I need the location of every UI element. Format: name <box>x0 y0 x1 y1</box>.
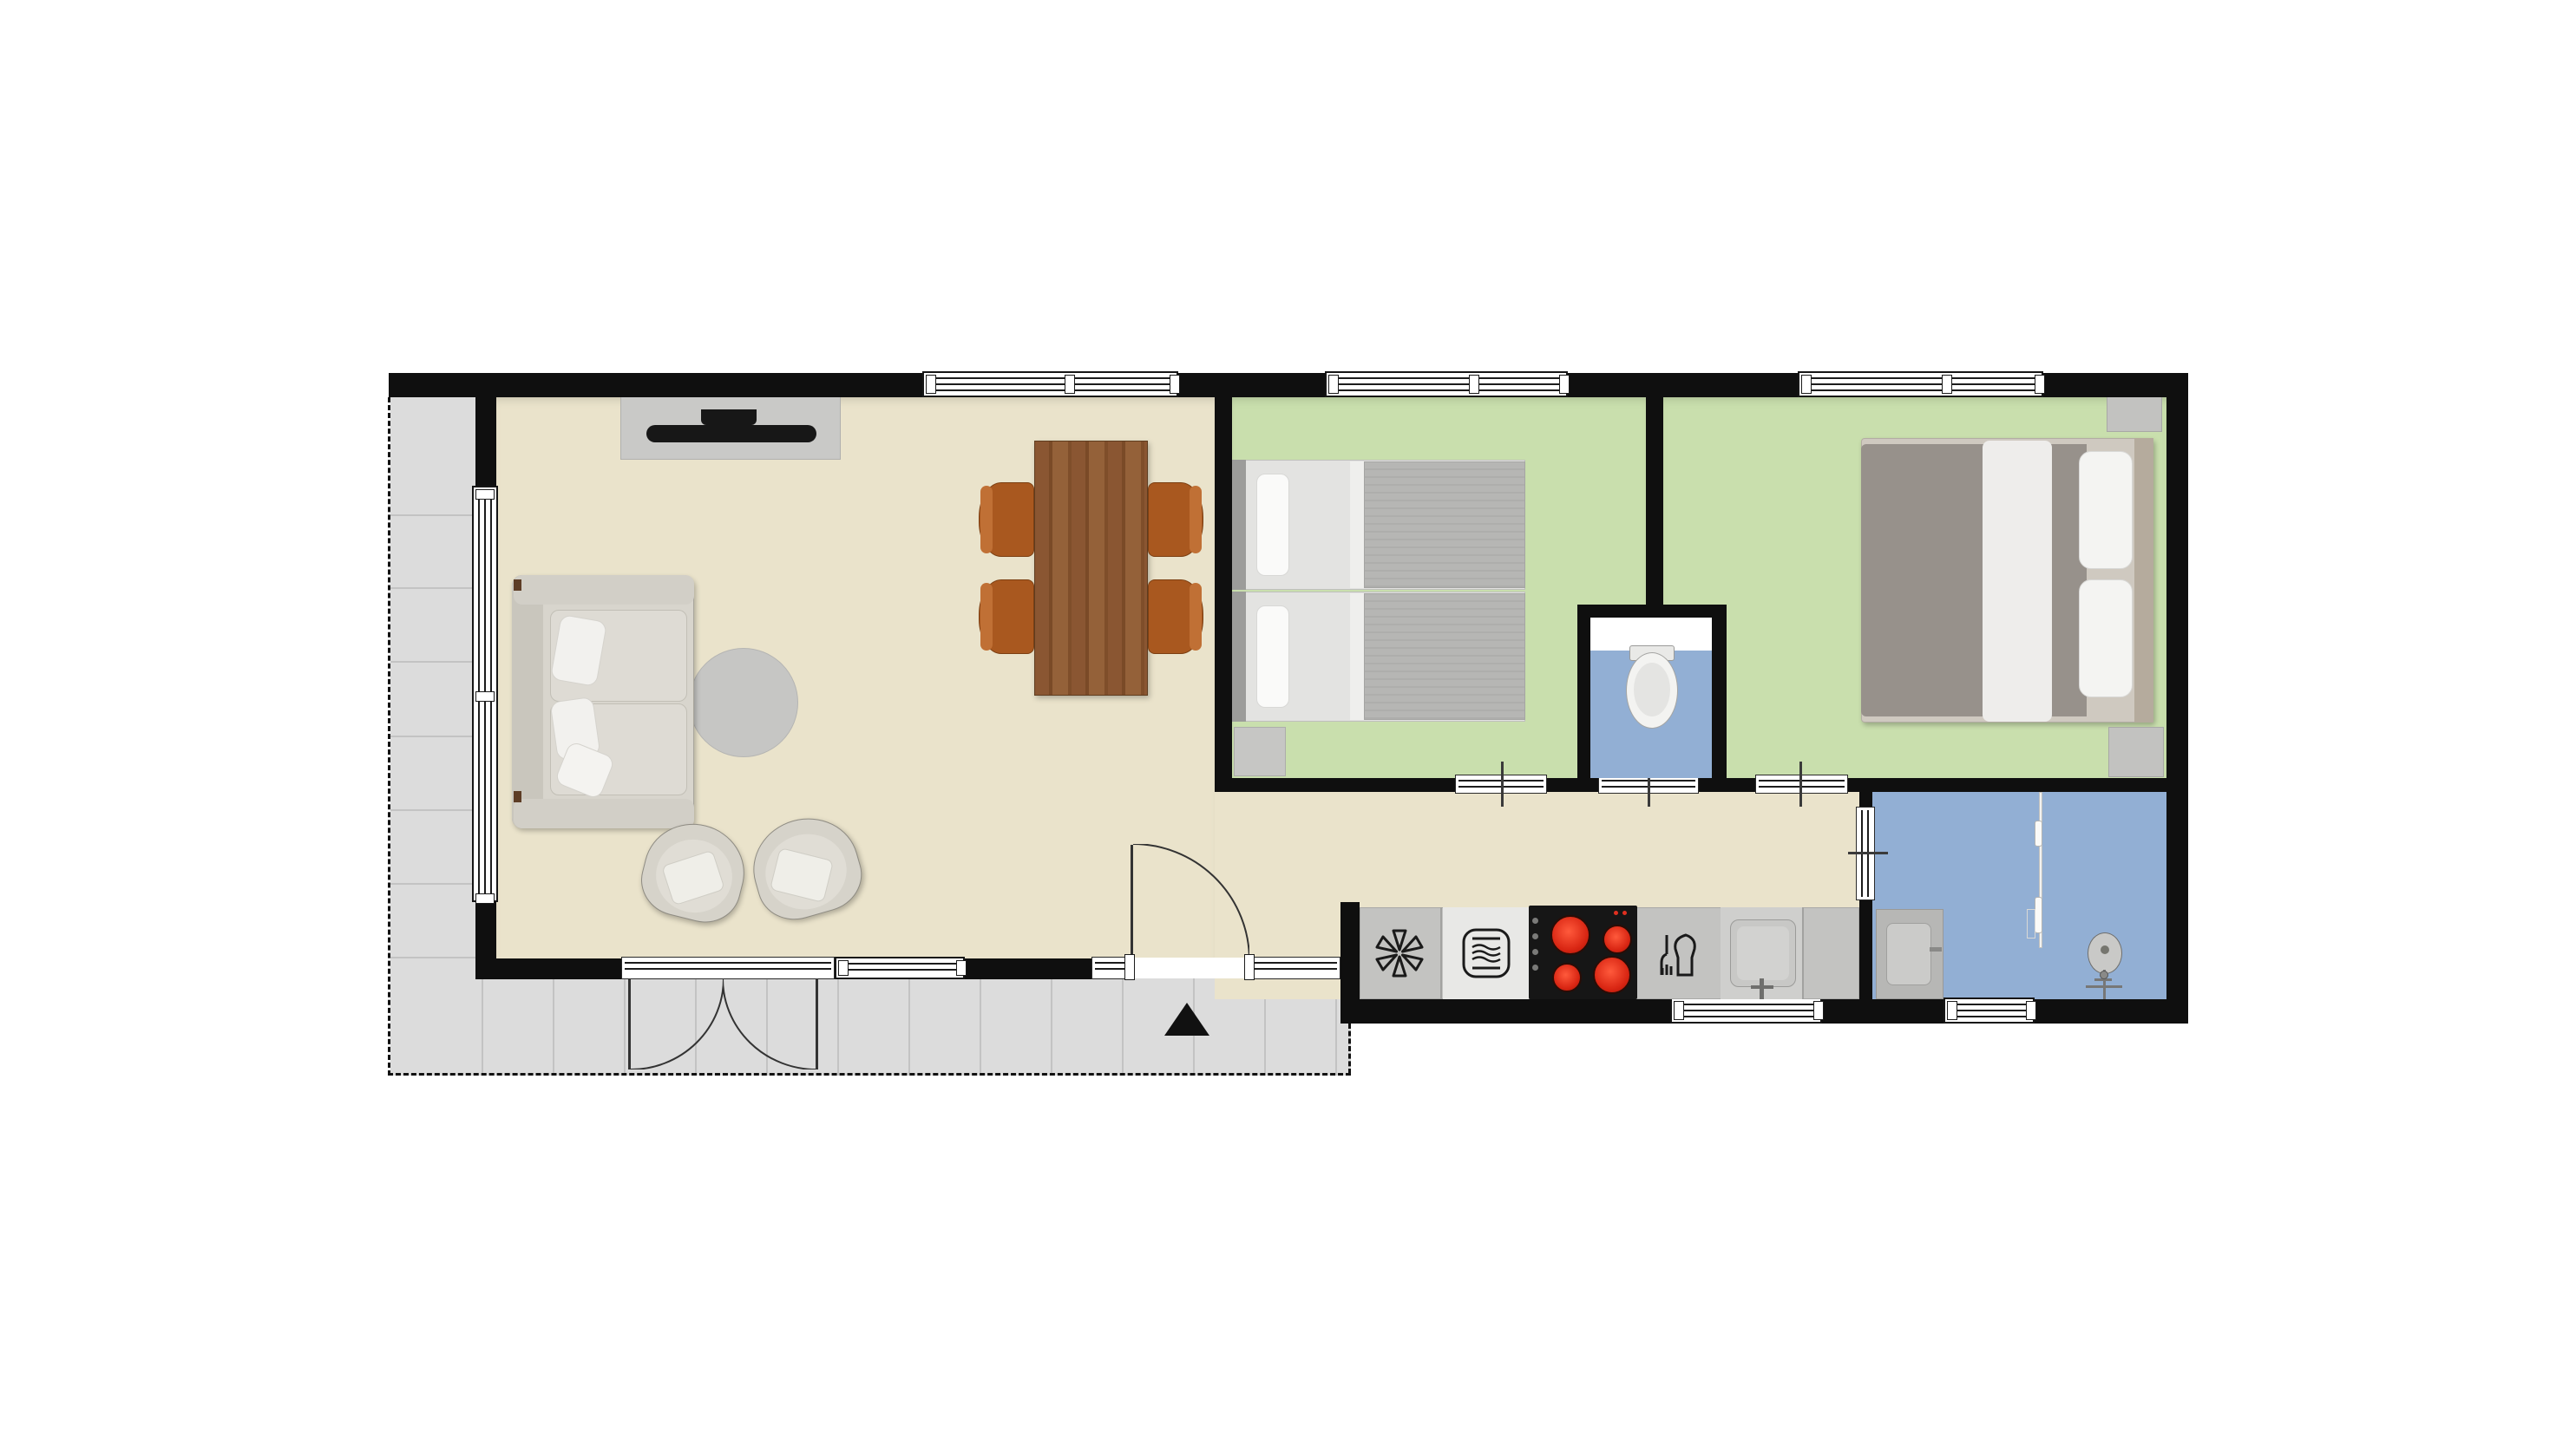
cooktop-knob <box>1532 949 1538 955</box>
nightstand <box>2108 727 2164 777</box>
entrance-arrow <box>1164 1003 1209 1036</box>
window-mullion <box>1469 375 1479 394</box>
wall-hall <box>1215 778 1455 792</box>
terrace-boundary-right <box>1348 1024 1351 1074</box>
wall-wc-right <box>1712 618 1727 792</box>
window-mullion <box>1942 375 1952 394</box>
window-living-top <box>922 371 1178 397</box>
wall-hall <box>1848 778 1872 792</box>
french-door-swing <box>723 978 816 1069</box>
round-rug <box>689 648 798 757</box>
glazing-lines <box>927 377 1174 391</box>
cooktop-knob <box>1532 933 1538 939</box>
wall-living-bottom <box>475 958 621 979</box>
double-bed-pillow <box>2079 451 2133 569</box>
window-bedroom-2 <box>1798 371 2043 397</box>
wall-top <box>1568 373 1798 397</box>
twin-bed-duvet <box>1364 593 1525 720</box>
cooktop-burner <box>1550 915 1590 955</box>
nightstand <box>2107 396 2162 432</box>
window-living-bottom <box>835 957 965 979</box>
terrace-boundary-bottom <box>388 1073 1351 1076</box>
cooktop-burner <box>1552 963 1582 992</box>
window-mullion <box>1170 375 1180 394</box>
terrace-tile-joint <box>482 978 483 1076</box>
wall-bedroom2-bathroom <box>1872 778 2188 792</box>
wall-hall-bathroom <box>1859 792 1872 807</box>
french-door-swing <box>631 978 724 1069</box>
dining-chair-back <box>980 486 993 553</box>
cooktop-indicator <box>1622 911 1627 915</box>
double-bed-sheet <box>1983 441 2052 722</box>
wall-left <box>475 373 496 486</box>
extractor-fan-icon <box>1374 928 1425 978</box>
window-mullion <box>475 691 495 702</box>
shower-valve <box>2100 971 2108 979</box>
door-position-tick <box>1501 762 1504 807</box>
wall-bottom-right <box>1340 999 1670 1024</box>
wall-hall <box>1547 778 1598 792</box>
floor-plan <box>0 0 2576 1439</box>
double-bed-duvet <box>1861 444 2087 716</box>
cooktop-burner <box>1603 925 1632 954</box>
twin-bed-pillow <box>1256 605 1289 708</box>
tv-screen <box>646 425 816 442</box>
window-mullion <box>1328 375 1339 394</box>
terrace-tile-joint <box>390 661 475 663</box>
wall-bedroom-divider <box>1646 396 1663 618</box>
shower-screen-knob <box>2035 897 2042 933</box>
twin-bed-sheet-fold <box>1350 461 1364 588</box>
sink-faucet-cross <box>1751 985 1773 989</box>
window-living-left <box>472 486 498 902</box>
vanity-tap <box>1930 947 1942 952</box>
twin-bed-sheet-fold <box>1350 593 1364 720</box>
entrance-door-post <box>1124 954 1135 980</box>
window-kitchen <box>1670 997 1822 1024</box>
shower-screen-knob <box>2035 821 2042 847</box>
terrace-tile-joint <box>980 978 981 1076</box>
wall-top <box>389 373 922 397</box>
door-position-tick <box>1799 762 1802 807</box>
sofa-armrest-bottom <box>514 799 694 828</box>
window-mullion <box>1674 1001 1684 1020</box>
dining-chair-back <box>1190 486 1202 553</box>
terrace-tile-joint <box>390 957 475 958</box>
dining-chair-back <box>980 583 993 651</box>
floor-plan-screenshot <box>0 0 2576 1439</box>
glazing-lines <box>625 962 831 974</box>
terrace-tile-joint <box>624 978 626 1076</box>
terrace-tile-joint <box>1122 978 1124 1076</box>
window-mullion <box>1065 375 1075 394</box>
entrance-door-opening <box>1130 958 1252 978</box>
cooktop-knob <box>1532 965 1538 971</box>
terrace-tile-joint <box>553 978 554 1076</box>
wall-wc-top <box>1577 605 1727 618</box>
cooktop-indicator <box>1614 911 1618 915</box>
window-mullion <box>1813 1001 1824 1020</box>
window-mullion <box>926 375 936 394</box>
wall-bedroom1-left <box>1215 396 1232 792</box>
sofa-wood-trim <box>514 579 521 591</box>
window-mullion <box>838 960 849 976</box>
terrace-tile-joint <box>908 978 910 1076</box>
dishwasher-icon <box>1654 928 1702 982</box>
shower-head-center <box>2101 945 2109 954</box>
toilet-seat <box>1634 663 1670 716</box>
terrace-tile-joint <box>390 514 475 516</box>
sofa-armrest-top <box>514 575 694 605</box>
terrace-tile-joint <box>837 978 839 1076</box>
window-mullion <box>475 893 495 904</box>
oven-icon <box>1459 926 1511 980</box>
window-bedroom-1 <box>1325 371 1568 397</box>
window-mullion <box>475 489 495 500</box>
sink-basin-inner <box>1737 926 1789 980</box>
cooktop-knob <box>1532 918 1538 924</box>
window-mullion <box>956 960 967 976</box>
wall-hall <box>1699 778 1755 792</box>
sofa-wood-trim <box>514 791 521 802</box>
window-mullion <box>2026 1001 2036 1020</box>
window-mullion <box>1559 375 1570 394</box>
shower-screen-handle <box>2027 909 2035 939</box>
terrace-tile-joint <box>1051 978 1052 1076</box>
wall-wc-left <box>1577 618 1590 792</box>
glazing-lines <box>1675 1004 1818 1017</box>
glazing-lines <box>1802 377 2039 391</box>
entrance-door-swing <box>1133 844 1249 960</box>
wall-living-bottom <box>965 958 1091 979</box>
dining-table <box>1034 441 1148 696</box>
double-bed-headboard <box>2134 438 2153 723</box>
glazing-lines <box>1329 377 1563 391</box>
wall-right <box>2166 373 2188 1024</box>
terrace-boundary-left <box>388 397 390 1076</box>
tv-mount <box>701 409 757 425</box>
double-bed-pillow <box>2079 579 2133 697</box>
window-mullion <box>2035 375 2045 394</box>
french-door-sill <box>621 957 835 979</box>
window-mullion <box>1801 375 1812 394</box>
twin-bed-pillow <box>1256 474 1289 576</box>
glazing-lines <box>1253 962 1337 974</box>
glazing-lines <box>1948 1004 2030 1017</box>
counter-divider <box>1802 907 1804 999</box>
window-bathroom <box>1943 997 2035 1024</box>
door-position-tick <box>1848 852 1888 854</box>
bedroom-1-dresser <box>1234 727 1286 776</box>
entrance-door-sill <box>1249 957 1340 979</box>
terrace-tile-joint <box>390 883 475 885</box>
terrace-tile-joint <box>390 736 475 737</box>
shower-bar <box>2086 985 2122 988</box>
wall-bottom-right <box>1822 999 1943 1024</box>
sink-faucet-stem <box>1760 978 1764 999</box>
wall-top <box>1178 373 1325 397</box>
terrace-tile-joint <box>390 809 475 811</box>
twin-bed-headboard <box>1230 460 1246 590</box>
counter-divider <box>1440 907 1442 999</box>
wall-kitchen-left <box>1340 902 1360 999</box>
terrace-tile-joint <box>390 587 475 589</box>
entrance-door-post <box>1244 954 1255 980</box>
vanity-basin <box>1886 923 1931 985</box>
cooktop-burner <box>1593 956 1631 994</box>
window-mullion <box>1947 1001 1957 1020</box>
glazing-lines <box>839 963 960 973</box>
twin-bed-duvet <box>1364 461 1525 588</box>
dining-chair-back <box>1190 583 1202 651</box>
wall-hall-bathroom <box>1859 900 1872 999</box>
wall-bottom-right <box>2035 999 2188 1024</box>
twin-bed-headboard <box>1230 592 1246 722</box>
